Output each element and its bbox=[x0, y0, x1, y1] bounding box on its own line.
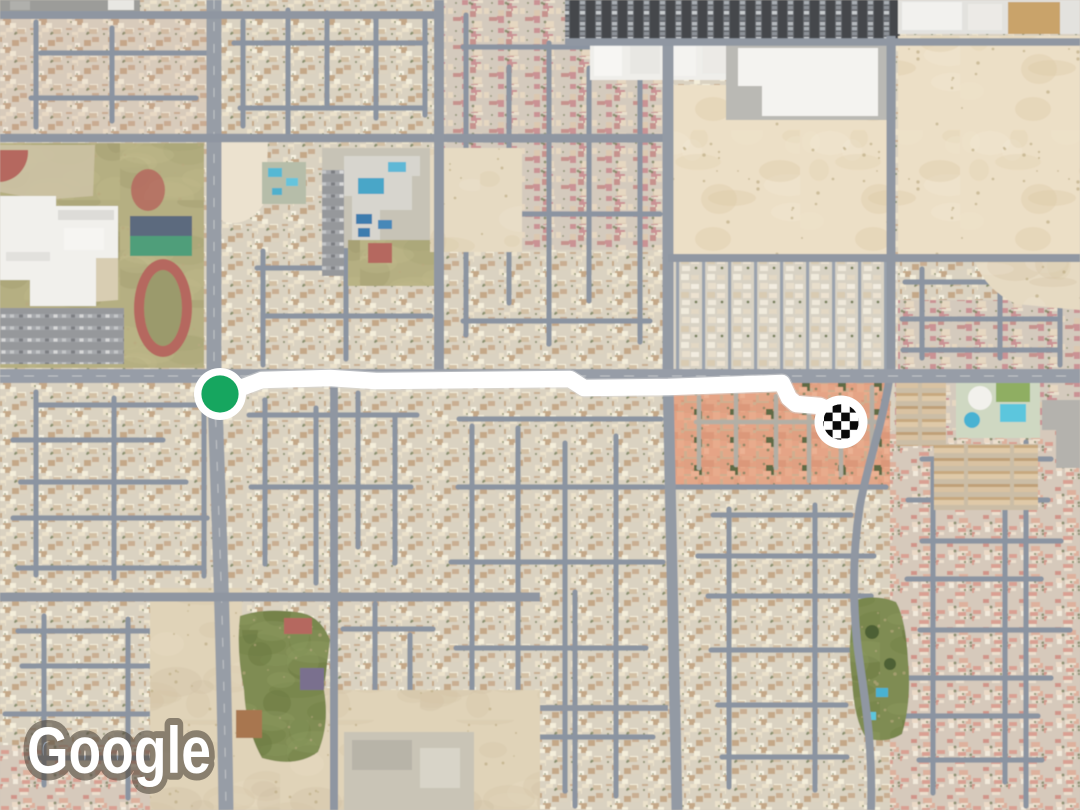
svg-text:Google: Google bbox=[27, 713, 211, 787]
